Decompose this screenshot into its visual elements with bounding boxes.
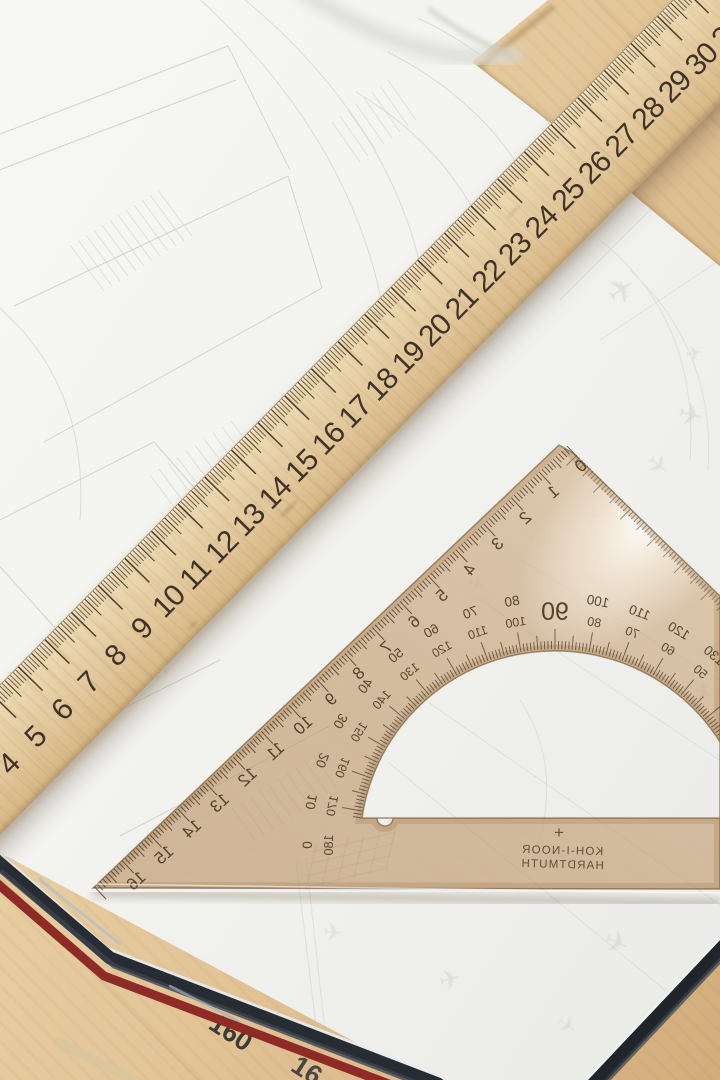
ruler-cm-number: 21: [441, 282, 484, 325]
ruler-cm-number: 19: [387, 336, 430, 379]
ruler-cm-number: 6: [46, 694, 78, 726]
ruler-cm-number: 10: [148, 580, 191, 623]
ruler-cm-number: 29: [654, 65, 697, 108]
ruler-cm-number: 18: [361, 363, 404, 406]
svg-text:✈: ✈: [322, 919, 343, 946]
svg-text:80: 80: [586, 614, 602, 630]
svg-text:180: 180: [322, 835, 336, 856]
ruler-cm-number: 5: [20, 721, 52, 753]
ruler-cm-number: 17: [334, 390, 377, 433]
ruler-cm-number: 25: [547, 174, 590, 217]
ruler-cm-number: 7: [73, 667, 105, 699]
ruler-cm-number: 12: [201, 526, 244, 569]
ruler-cm-number: 24: [520, 201, 563, 244]
ruler-cm-number: 15: [281, 445, 324, 488]
photo-desk-scene: ✈✈✈✈✈✈✈✈✈✈✈ 160 16 01234567: [0, 0, 720, 1080]
ruler-cm-number: 11: [175, 554, 217, 596]
ruler-cm-number: 4: [0, 748, 26, 780]
ruler-cm-number: 22: [467, 255, 510, 298]
brand-plus-mark: +: [554, 823, 564, 842]
ruler-cm-number: 14: [254, 472, 297, 515]
ruler-cm-number: 27: [600, 119, 643, 162]
svg-text:0: 0: [300, 841, 315, 849]
brand-name-line2: HARDTMUTH: [520, 858, 604, 872]
protractor-90-label: 90: [541, 598, 569, 626]
ruler-cm-number: 16: [307, 418, 350, 461]
ruler-cm-number: 28: [627, 92, 670, 135]
brand-name-line1: KOH-I-NOOR: [521, 844, 604, 858]
ruler-cm-number: 26: [574, 147, 617, 190]
svg-text:10: 10: [303, 793, 320, 810]
svg-text:80: 80: [503, 593, 520, 610]
ruler-cm-number: 13: [227, 499, 270, 542]
ruler-cm-number: 8: [100, 640, 132, 672]
ruler-cm-number: 20: [414, 309, 457, 352]
ruler-cm-number: 9: [126, 613, 158, 645]
ruler-cm-number: 23: [494, 228, 537, 271]
